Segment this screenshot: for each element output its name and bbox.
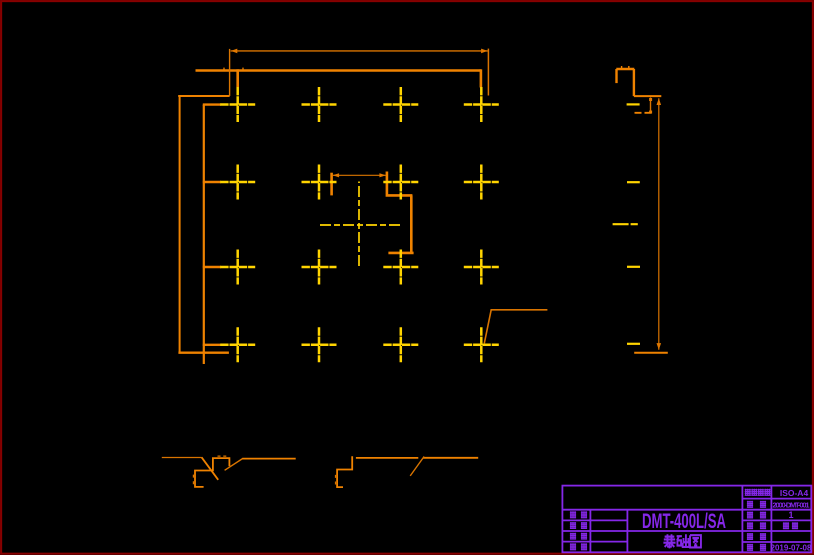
svg-text:1: 1	[788, 510, 793, 520]
svg-text:ISO-A4: ISO-A4	[780, 488, 809, 498]
svg-text:2019-07-08: 2019-07-08	[771, 544, 812, 553]
svg-text:2000-DMT-001: 2000-DMT-001	[773, 500, 810, 509]
svg-text:DMT-400L/SA: DMT-400L/SA	[642, 510, 726, 533]
